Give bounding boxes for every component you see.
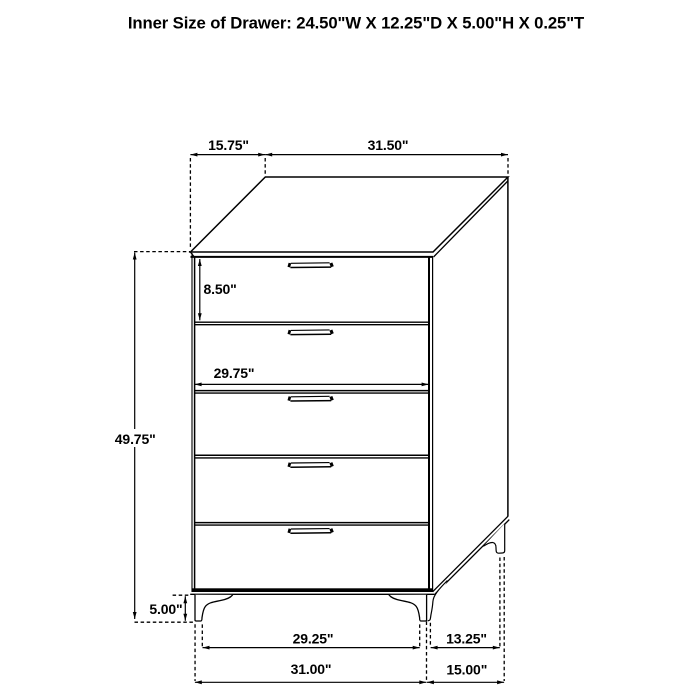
- svg-text:31.50": 31.50": [368, 137, 409, 153]
- svg-text:31.00": 31.00": [291, 661, 332, 677]
- svg-text:13.25": 13.25": [446, 631, 487, 647]
- svg-text:15.00": 15.00": [446, 662, 487, 678]
- svg-text:Inner Size of Drawer: 24.50"W: Inner Size of Drawer: 24.50"W X 12.25"D …: [128, 13, 585, 32]
- svg-text:5.00": 5.00": [149, 601, 182, 617]
- svg-text:29.25": 29.25": [293, 631, 334, 647]
- svg-text:15.75": 15.75": [208, 137, 249, 153]
- svg-text:8.50": 8.50": [204, 281, 237, 297]
- svg-text:49.75": 49.75": [115, 431, 156, 447]
- svg-text:29.75": 29.75": [214, 365, 255, 381]
